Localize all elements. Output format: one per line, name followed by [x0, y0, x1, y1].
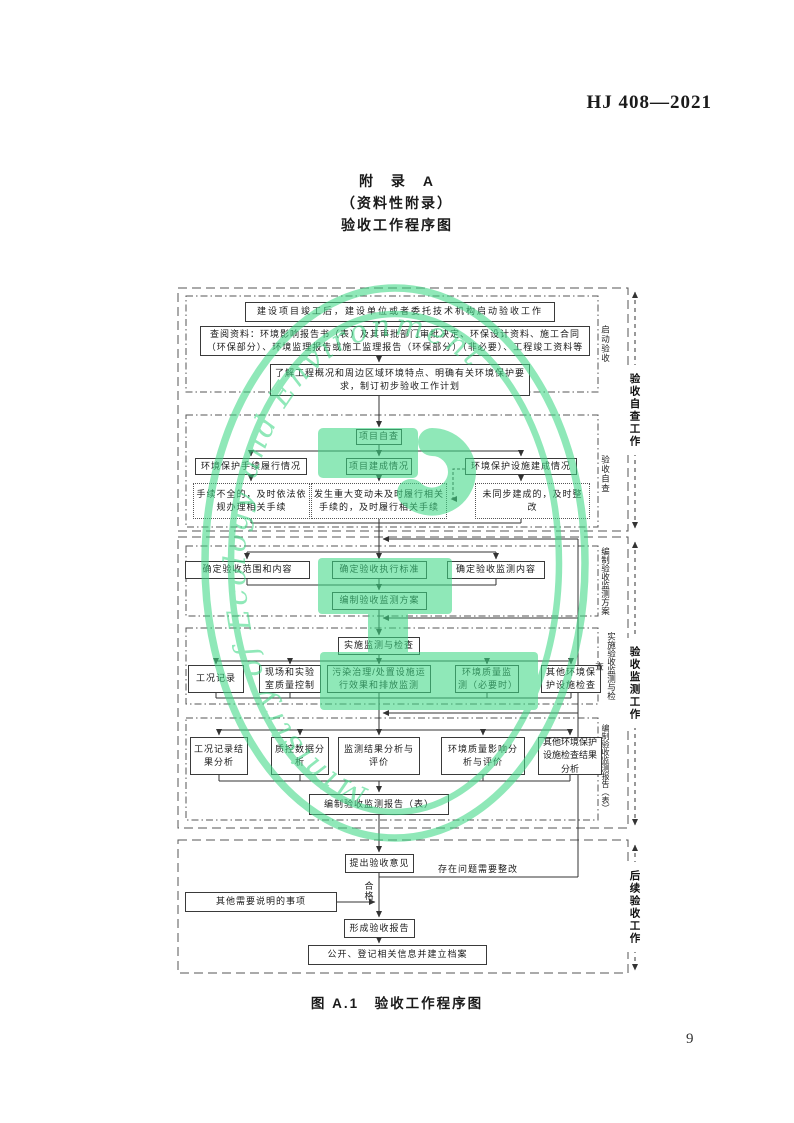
flow-box-facilities-built: 环境保护设施建成情况	[465, 458, 577, 475]
document-page: HJ 408—2021 附 录 A （资料性附录） 验收工作程序图	[0, 0, 794, 1123]
flow-box-acceptance-report: 形成验收报告	[344, 919, 415, 938]
flow-box-standards: 确定验收执行标准	[332, 561, 427, 579]
standard-number: HJ 408—2021	[586, 92, 712, 114]
flow-box-review-materials: 查阅资料：环境影响报告书（表）及其审批部门审批决定、环保设计资料、施工合同（环保…	[200, 326, 590, 356]
flow-box-monitor-report: 编制验收监测报告（表）	[309, 794, 449, 815]
phase-label-plan: 编制验收监测方案	[599, 547, 612, 615]
flow-box-monitor-content: 确定验收监测内容	[447, 561, 545, 579]
flow-box-qc: 现场和实验室质量控制	[259, 665, 321, 693]
figure-caption: 图 A.1 验收工作程序图	[0, 992, 794, 1012]
phase-label-report: 编制验收监测报告（表）	[599, 718, 612, 818]
flow-box-implement-monitoring: 实施监测与检查	[338, 637, 420, 655]
flow-box-condition-analysis: 工况记录结果分析	[190, 737, 248, 775]
flow-box-treatment-monitoring: 污染治理/处置设施运行效果和排放监测	[327, 665, 431, 693]
phase-label-implement: 实施验收监测与检查	[599, 629, 612, 703]
flow-box-condition-record: 工况记录	[188, 665, 244, 693]
phase-label-self-check: 验收自查	[599, 445, 612, 503]
flow-box-other-facility-check: 其他环境保护设施检查	[541, 665, 601, 693]
flow-box-other-check-analysis: 其他环境保护设施检查结果分析	[538, 737, 602, 775]
flowchart: 建设项目竣工后，建设单位或者委托技术机构启动验收工作 查阅资料：环境影响报告书（…	[175, 285, 640, 977]
flow-box-initial-plan: 了解工程概况和周边区域环境特点、明确有关环境保护要求，制订初步验收工作计划	[270, 364, 530, 396]
group-label-self-check-work: 验收自查工作	[627, 365, 643, 455]
flow-box-procedures-status: 环境保护手续履行情况	[195, 458, 307, 475]
appendix-subtitle: （资料性附录）	[0, 192, 794, 214]
flow-box-project-built: 项目建成情况	[346, 458, 412, 475]
flow-box-result-evaluation: 监测结果分析与评价	[338, 737, 420, 775]
flow-box-start: 建设项目竣工后，建设单位或者委托技术机构启动验收工作	[245, 302, 555, 322]
appendix-name: 验收工作程序图	[0, 214, 794, 236]
rework-label: 存在问题需要整改	[437, 862, 519, 875]
flow-box-fix-procedures: 手续不全的，及时依法依规办理相关手续	[193, 483, 310, 519]
flow-box-qc-analysis: 质控数据分析	[271, 737, 329, 775]
flow-box-publish-archive: 公开、登记相关信息并建立档案	[308, 945, 487, 965]
group-label-follow-up-work: 后续验收工作	[627, 862, 643, 952]
flow-box-scope: 确定验收范围和内容	[185, 561, 310, 579]
flow-box-other-notes: 其他需要说明的事项	[185, 892, 337, 912]
appendix-title-block: 附 录 A （资料性附录） 验收工作程序图	[0, 170, 794, 236]
phase-label-start: 启动验收	[599, 315, 612, 373]
flow-box-env-quality-monitoring: 环境质量监测（必要时）	[455, 665, 519, 693]
flow-box-monitor-plan: 编制验收监测方案	[332, 592, 427, 610]
group-label-monitoring-work: 验收监测工作	[627, 638, 643, 728]
flow-box-rectify: 未同步建成的，及时整改	[475, 483, 590, 519]
flow-box-acceptance-opinion: 提出验收意见	[345, 854, 414, 873]
appendix-title: 附 录 A	[0, 170, 794, 192]
flow-box-self-check: 项目自查	[356, 429, 402, 445]
flow-box-impact-evaluation: 环境质量影响分析与评价	[441, 737, 525, 775]
flow-box-major-change: 发生重大变动未及时履行相关手续的，及时履行相关手续	[311, 483, 447, 519]
page-number: 9	[686, 1031, 694, 1048]
pass-label: 合格	[363, 877, 375, 905]
